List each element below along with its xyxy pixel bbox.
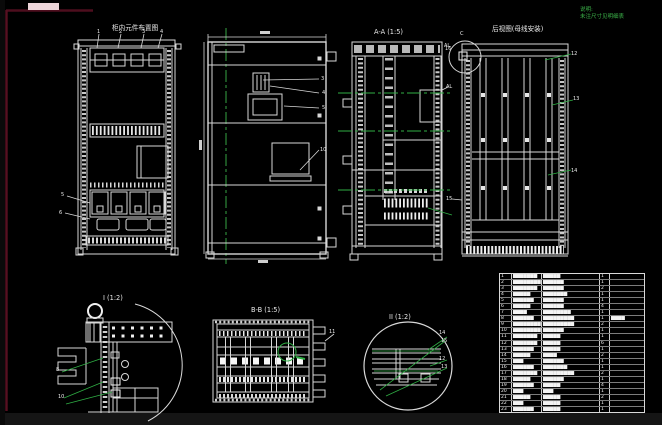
callout-label: 6 — [59, 210, 62, 216]
callout-label: 10 — [320, 147, 326, 153]
bom-cell: ▆▆▆▆▆▆▆▆ — [511, 280, 541, 285]
callout-label: 4 — [160, 29, 163, 35]
plan-bb-title: B-B (1:5) — [251, 306, 280, 314]
front-components-view — [65, 34, 181, 255]
callout-label: 12 — [571, 51, 577, 57]
detail-ii-title: II (1:2) — [389, 313, 411, 321]
bom-cell: ▆▆▆▆▆▆▆ — [511, 341, 541, 346]
rear-busbar-view — [449, 41, 573, 256]
cad-drawing-canvas: 柜内元件布置图 A-A (1:5) 后视图(母线安装) I (1:2) B-B … — [0, 0, 662, 425]
callout-label: 5 — [61, 192, 64, 198]
bom-cell: ▆▆▆▆▆▆ — [511, 407, 541, 412]
left-margin — [0, 0, 5, 425]
callout-label: 15 — [441, 338, 447, 344]
callout-label: 14 — [571, 168, 577, 174]
highlight-bar — [28, 3, 59, 10]
bottom-letterbox — [0, 413, 662, 425]
callout-label: 14 — [439, 330, 445, 336]
section-aa-view — [338, 42, 452, 260]
bom-cell: ▆▆▆▆▆▆▆ — [511, 286, 541, 291]
callout-label: 1 — [97, 29, 100, 35]
callout-label: C — [460, 31, 463, 37]
callout-label: 16 — [445, 46, 451, 52]
callout-label: 4 — [322, 90, 325, 96]
callout-label: 2 — [119, 29, 122, 35]
detail-i-view — [58, 304, 182, 421]
bom-cell: 1 — [599, 407, 609, 412]
bom-cell: 23 — [500, 407, 511, 412]
callout-label: AL — [446, 84, 452, 90]
annotation-note-line2: 未注尺寸见明细表 — [580, 13, 624, 20]
front-door-view — [199, 28, 336, 264]
annotation-note: 说明: 未注尺寸见明细表 — [580, 6, 624, 20]
callout-label: 5 — [322, 105, 325, 111]
bom-cell: ▆▆▆▆▆▆▆ — [511, 274, 541, 279]
callout-label: 15 — [446, 196, 452, 202]
sheet-frame — [6, 10, 93, 411]
bom-cell — [609, 407, 644, 412]
rear-busbar-title: 后视图(母线安装) — [492, 24, 543, 34]
parts-list-table: 1▆▆▆▆▆▆▆▆▆▆▆▆12▆▆▆▆▆▆▆▆▆▆▆▆▆▆13▆▆▆▆▆▆▆▆▆… — [499, 273, 645, 413]
section-aa-title: A-A (1:5) — [374, 28, 403, 36]
bom-row: 8▆▆▆▆▆▆▆▆▆▆▆▆▆▆▆1▆▆▆▆ — [500, 315, 644, 321]
callout-label: 13 — [441, 364, 447, 370]
bom-cell: ▆▆▆▆▆ — [541, 407, 599, 412]
bom-row: 23▆▆▆▆▆▆▆▆▆▆▆1 — [500, 406, 644, 412]
callout-label: 10 — [58, 394, 64, 400]
callout-label: 12 — [439, 356, 445, 362]
bom-cell: ▆▆▆▆▆▆▆ — [511, 371, 541, 376]
callout-label: 11 — [329, 329, 335, 335]
callout-label: 3 — [142, 29, 145, 35]
callout-label: 13 — [573, 96, 579, 102]
callout-label: 3 — [321, 76, 324, 82]
annotation-note-line1: 说明: — [580, 6, 624, 13]
callout-label: 8 — [56, 367, 59, 373]
detail-i-title: I (1:2) — [103, 294, 123, 302]
plan-bb-view — [213, 320, 334, 402]
